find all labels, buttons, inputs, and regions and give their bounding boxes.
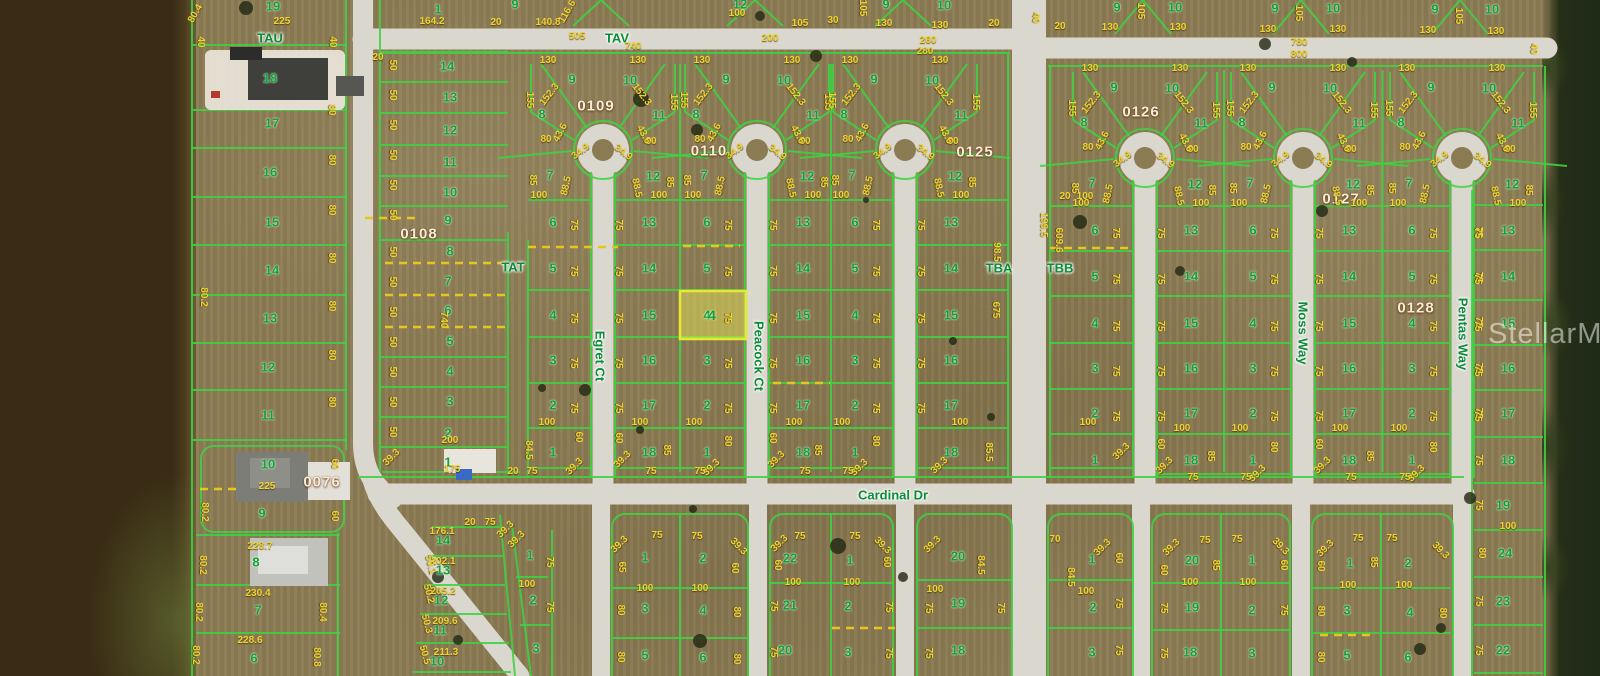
dimension-label: 34.9 — [1112, 150, 1133, 170]
dimension-label: 80 — [615, 604, 625, 615]
dimension-label: 85 — [1368, 556, 1378, 567]
dimension-label: 43.6 — [854, 122, 872, 144]
dimension-label: 75 — [694, 467, 705, 477]
lot-number-label: 3 — [851, 354, 858, 367]
dimension-label: 80.8 — [311, 647, 321, 666]
dimension-label: 40 — [1528, 43, 1538, 54]
lot-number-label: 5 — [549, 262, 556, 275]
dimension-label: 43.6 — [1094, 130, 1112, 152]
lot-number-label: 16 — [263, 166, 277, 179]
lot-number-label: 3 — [1088, 646, 1095, 659]
dimension-label: 100 — [952, 418, 969, 428]
dimension-label: 80.2 — [193, 602, 203, 621]
dimension-label: 75 — [1313, 410, 1323, 421]
dimension-label: 75 — [1113, 644, 1123, 655]
dimension-label: 155 — [1527, 102, 1537, 119]
lot-number-label: 3 — [703, 354, 710, 367]
dimension-label: 85 — [681, 174, 691, 185]
dimension-label: 88.5 — [1488, 185, 1502, 206]
dimension-label: 75 — [1155, 410, 1165, 421]
dimension-label: 34.9 — [1471, 151, 1492, 171]
dimension-label: 39.3 — [1313, 456, 1334, 477]
lot-number-label: 5 — [851, 262, 858, 275]
dimension-label: 75 — [1313, 320, 1323, 331]
lot-number-label: 15 — [1184, 317, 1198, 330]
dimension-label: 39.3 — [1112, 442, 1133, 463]
dimension-label: 100 — [686, 418, 703, 428]
lot-number-label: 16 — [1501, 362, 1515, 375]
dimension-label: 75 — [870, 312, 880, 323]
dimension-label: 164.2 — [419, 17, 444, 27]
dimension-label: 85 — [1206, 184, 1216, 195]
block-number-label: 0076 — [303, 475, 340, 490]
lot-number-label: 18 — [642, 446, 656, 459]
dimension-label: 75 — [1472, 365, 1482, 376]
lot-number-label: 16 — [1342, 362, 1356, 375]
dimension-label: 88.5 — [931, 177, 945, 198]
lot-number-label: 2 — [1089, 601, 1096, 614]
lot-number-label: 6 — [851, 216, 858, 229]
dimension-label: 155 — [524, 92, 534, 109]
dimension-label: 200 — [762, 34, 779, 44]
dimension-label: 50 — [387, 246, 397, 257]
dimension-label: 75 — [1352, 534, 1363, 544]
dimension-label: 39.3 — [728, 537, 749, 558]
lot-number-label: 23 — [1496, 595, 1510, 608]
dimension-label: 75 — [915, 312, 925, 323]
street-name-label: TBB — [1047, 262, 1074, 275]
dimension-label: 80 — [870, 435, 880, 446]
lot-number-label: 11 — [261, 409, 275, 422]
dimension-label: 39.3 — [565, 457, 586, 478]
lot-number-label: 17 — [1342, 407, 1356, 420]
dimension-label: 175 — [444, 465, 461, 475]
dimension-label: 75 — [1158, 647, 1168, 658]
dimension-label: 75 — [568, 357, 578, 368]
dimension-label: 800 — [1291, 50, 1308, 60]
dimension-label: 80 — [694, 135, 705, 145]
dimension-label: 75 — [1473, 499, 1483, 510]
dimension-label: 75 — [1278, 604, 1288, 615]
lot-number-label: 4 — [1408, 317, 1415, 330]
dimension-label: 50 — [387, 149, 397, 160]
dimension-label: 80 — [1315, 651, 1325, 662]
dimension-label: 50 — [387, 89, 397, 100]
dimension-label: 40 — [1030, 12, 1040, 23]
dimension-label: 80.2 — [190, 645, 200, 664]
highlighted-lot-number: 4 — [708, 307, 716, 323]
dimension-label: 152.3 — [1397, 90, 1420, 116]
dimension-label: 84.5 — [523, 440, 533, 459]
dimension-label: 100 — [1073, 199, 1090, 209]
dimension-label: 75 — [1187, 473, 1198, 483]
dimension-label: 75 — [915, 219, 925, 230]
dimension-label: 211.3 — [434, 648, 458, 658]
dimension-label: 60 — [1158, 564, 1168, 575]
dimension-label: 50 — [387, 306, 397, 317]
lot-number-label: 6 — [250, 652, 257, 665]
dimension-label: 105 — [792, 19, 809, 29]
dimension-label: 80 — [326, 104, 336, 115]
dimension-label: 100 — [805, 191, 822, 201]
dimension-label: 80 — [1268, 441, 1278, 452]
lot-number-label: 8 — [1397, 116, 1404, 129]
lot-number-label: 8 — [692, 108, 699, 121]
dimension-label: 130 — [1260, 25, 1277, 35]
lot-number-label: 14 — [642, 262, 656, 275]
lot-number-label: 10 — [261, 458, 275, 471]
dimension-label: 230.4 — [245, 589, 270, 599]
lot-number-label: 9 — [568, 73, 575, 86]
lot-number-label: 12 — [1505, 178, 1519, 191]
lot-number-label: 1 — [641, 551, 648, 564]
dimension-label: 88.5 — [862, 175, 876, 196]
dimension-label: 105 — [857, 0, 867, 16]
dimension-label: 100 — [1182, 578, 1199, 588]
dimension-label: 100 — [1510, 199, 1527, 209]
lot-number-label: 20 — [778, 644, 792, 657]
lot-number-label: 12 — [1346, 178, 1360, 191]
lot-number-label: 2 — [699, 552, 706, 565]
dimension-label: 75 — [691, 532, 702, 542]
lot-number-label: 1 — [1088, 553, 1095, 566]
dimension-label: 75 — [544, 556, 554, 567]
dimension-label: 88.5 — [783, 177, 797, 198]
dimension-label: 20 — [490, 18, 501, 28]
dimension-label: 50.3 — [419, 613, 434, 634]
lot-number-label: 4 — [699, 604, 706, 617]
lot-number-label: 1 — [846, 554, 853, 567]
dimension-label: 75 — [1399, 473, 1410, 483]
dimension-label: 130 — [1489, 64, 1506, 74]
dimension-label: 75 — [1199, 536, 1210, 546]
dimension-label: 50 — [387, 209, 397, 220]
dimension-label: 39.3 — [1270, 537, 1291, 558]
lot-number-label: 1 — [703, 446, 710, 459]
dimension-label: 75 — [1155, 365, 1165, 376]
street-name-label: TBA — [986, 262, 1013, 275]
dimension-label: 20 — [507, 467, 518, 477]
dimension-label: 75 — [915, 357, 925, 368]
dimension-label: 75 — [484, 518, 495, 528]
dimension-label: 152.3 — [1171, 90, 1194, 116]
dimension-label: 60 — [573, 431, 583, 442]
lot-number-label: 16 — [642, 354, 656, 367]
dimension-label: 75 — [1268, 227, 1278, 238]
lot-number-label: 6 — [1091, 224, 1098, 237]
dimension-label: 199.5 — [1038, 212, 1048, 237]
lot-number-label: 5 — [446, 335, 453, 348]
dimension-label: 60 — [881, 556, 891, 567]
dimension-label: 75 — [915, 402, 925, 413]
lot-number-label: 7 — [444, 275, 451, 288]
dimension-label: 80.2 — [197, 555, 207, 574]
dimension-label: 60 — [767, 432, 777, 443]
dimension-label: 100 — [1500, 522, 1517, 532]
lot-number-label: 2 — [549, 399, 556, 412]
dimension-label: 155 — [668, 94, 678, 111]
dimension-label: 75 — [870, 265, 880, 276]
dimension-label: 100 — [1332, 424, 1349, 434]
lot-number-label: 13 — [796, 216, 810, 229]
dimension-label: 228.6 — [237, 636, 262, 646]
lot-number-label: 7 — [1246, 177, 1253, 190]
lot-number-label: 6 — [1404, 651, 1411, 664]
lot-number-label: 19 — [951, 597, 965, 610]
dimension-label: 75 — [722, 357, 732, 368]
lot-number-label: 11 — [806, 109, 820, 122]
dimension-label: 88.5 — [714, 175, 728, 196]
dimension-label: 75 — [768, 646, 778, 657]
dimension-label: 70 — [1049, 535, 1060, 545]
lot-number-label: 18 — [944, 446, 958, 459]
dimension-label: 80 — [731, 606, 741, 617]
dimension-label: 98.5 — [991, 242, 1001, 261]
lot-number-label: 17 — [796, 399, 810, 412]
dimension-label: 34.9 — [1154, 151, 1175, 171]
dimension-label: 100 — [834, 418, 851, 428]
lot-number-label: 9 — [882, 0, 889, 11]
dimension-label: 152.3 — [538, 82, 561, 108]
lot-number-label: 2 — [851, 399, 858, 412]
dimension-label: 75 — [1427, 320, 1437, 331]
dimension-label: 225 — [259, 482, 276, 492]
dimension-label: 100 — [1391, 424, 1408, 434]
dimension-label: 34.9 — [872, 142, 893, 162]
dimension-label: 39.3 — [923, 535, 944, 556]
dimension-label: 75 — [1155, 227, 1165, 238]
dimension-label: 130 — [876, 19, 893, 29]
dimension-label: 80 — [1399, 143, 1410, 153]
lot-number-label: 3 — [532, 642, 539, 655]
lot-number-label: 9 — [511, 0, 518, 11]
lot-number-label: 11 — [1194, 117, 1208, 130]
dimension-label: 740 — [625, 42, 642, 52]
dimension-label: 100 — [844, 578, 861, 588]
dimension-label: 100 — [1193, 199, 1210, 209]
lot-number-label: 19 — [1496, 499, 1510, 512]
lot-number-label: 5 — [1091, 270, 1098, 283]
dimension-label: 100 — [953, 191, 970, 201]
dimension-label: 176.1 — [429, 527, 454, 537]
lot-number-label: 5 — [1343, 649, 1350, 662]
dimension-label: 34.9 — [570, 142, 591, 162]
dimension-label: 34.9 — [612, 143, 633, 163]
lot-number-label: 6 — [1408, 224, 1415, 237]
dimension-label: 80 — [326, 300, 336, 311]
lot-number-label: 12 — [443, 124, 457, 137]
lot-number-label: 2 — [1249, 407, 1256, 420]
dimension-label: 85 — [664, 176, 674, 187]
dimension-label: 80.4 — [317, 602, 327, 621]
lot-number-label: 6 — [699, 651, 706, 664]
dimension-label: 75 — [767, 265, 777, 276]
dimension-label: 75 — [767, 219, 777, 230]
dimension-label: 152.3 — [1080, 90, 1103, 116]
lot-number-label: 15 — [944, 309, 958, 322]
lot-number-label: 5 — [703, 262, 710, 275]
dimension-label: 155 — [1210, 102, 1220, 119]
dimension-label: 39.3 — [613, 450, 634, 471]
lot-number-label: 13 — [944, 216, 958, 229]
dimension-label: 75 — [995, 602, 1005, 613]
dimension-label: 50.5 — [417, 644, 432, 665]
dimension-label: 100 — [1240, 578, 1257, 588]
dimension-label: 75 — [1268, 320, 1278, 331]
dimension-label: 43.6 — [1493, 132, 1511, 154]
dimension-label: 130 — [1330, 25, 1347, 35]
dimension-label: 75 — [915, 265, 925, 276]
dimension-label: 88.5 — [629, 177, 643, 198]
dimension-label: 75 — [1473, 595, 1483, 606]
dimension-label: 505 — [569, 32, 586, 42]
dimension-label: 130 — [842, 56, 859, 66]
dimension-label: 43.6 — [1411, 130, 1429, 152]
dimension-label: 60 — [1315, 560, 1325, 571]
dimension-label: 75 — [1268, 273, 1278, 284]
map-labels-layer: 01080076010901100125012601270128TAUTAVTA… — [0, 0, 1600, 676]
dimension-label: 75 — [722, 402, 732, 413]
lot-number-label: 19 — [1185, 601, 1199, 614]
block-number-label: 0126 — [1122, 105, 1159, 120]
lot-number-label: 13 — [1184, 224, 1198, 237]
dimension-label: 50 — [387, 179, 397, 190]
dimension-label: 75 — [613, 219, 623, 230]
dimension-label: 100 — [833, 191, 850, 201]
lot-number-label: 18 — [1184, 454, 1198, 467]
dimension-label: 75 — [767, 402, 777, 413]
lot-number-label: 15 — [642, 309, 656, 322]
dimension-label: 40 — [195, 36, 205, 47]
lot-number-label: 7 — [546, 169, 553, 182]
dimension-label: 80 — [1476, 547, 1486, 558]
dimension-label: 80 — [540, 135, 551, 145]
lot-number-label: 17 — [1184, 407, 1198, 420]
dimension-label: 85 — [1386, 182, 1396, 193]
dimension-label: 34.9 — [1312, 151, 1333, 171]
lot-number-label: 2 — [1091, 407, 1098, 420]
dimension-label: 75 — [1473, 644, 1483, 655]
dimension-label: 50 — [387, 59, 397, 70]
dimension-label: 75 — [1313, 273, 1323, 284]
lot-number-label: 5 — [1249, 270, 1256, 283]
street-name-label: Pentas Way — [1457, 298, 1470, 371]
dimension-label: 228.7 — [247, 542, 272, 552]
street-name-label: TAT — [501, 261, 524, 274]
lot-number-label: 16 — [796, 354, 810, 367]
lot-number-label: 2 — [1408, 407, 1415, 420]
lot-number-label: 12 — [1188, 178, 1202, 191]
dimension-label: 100 — [651, 191, 668, 201]
lot-number-label: 8 — [1080, 116, 1087, 129]
dimension-label: 20 — [464, 518, 475, 528]
lot-number-label: 10 — [1326, 2, 1340, 15]
dimension-label: 75 — [613, 402, 623, 413]
dimension-label: 75 — [1345, 473, 1356, 483]
dimension-label: 50 — [387, 119, 397, 130]
dimension-label: 75 — [842, 467, 853, 477]
dimension-label: 75 — [645, 467, 656, 477]
lot-number-label: 12 — [261, 361, 275, 374]
dimension-label: 75 — [883, 601, 893, 612]
dimension-label: 75 — [1473, 454, 1483, 465]
lot-number-label: 3 — [446, 395, 453, 408]
dimension-label: 152.3 — [1329, 90, 1352, 116]
dimension-label: 130 — [1330, 64, 1347, 74]
dimension-label: 75 — [651, 531, 662, 541]
dimension-label: 85 — [1227, 182, 1237, 193]
dimension-label: 152.3 — [692, 82, 715, 108]
lot-number-label: 16 — [1184, 362, 1198, 375]
dimension-label: 100 — [927, 585, 944, 595]
dimension-label: 60 — [613, 432, 623, 443]
dimension-label: 39.3 — [872, 536, 893, 557]
lot-number-label: 3 — [1091, 362, 1098, 375]
lot-number-label: 14 — [796, 262, 810, 275]
dimension-label: 39.3 — [1155, 456, 1176, 477]
dimension-label: 34.9 — [766, 143, 787, 163]
street-name-label: Moss Way — [1297, 301, 1310, 364]
dimension-label: 130 — [1082, 64, 1099, 74]
dimension-label: 88.5 — [1171, 185, 1185, 206]
dimension-label: 130 — [932, 56, 949, 66]
dimension-label: 85 — [829, 174, 839, 185]
dimension-label: 60 — [329, 510, 339, 521]
dimension-label: 75 — [1113, 597, 1123, 608]
lot-number-label: 14 — [1501, 270, 1515, 283]
dimension-label: 80 — [326, 204, 336, 215]
lot-number-label: 14 — [1342, 270, 1356, 283]
lot-number-label: 13 — [263, 312, 277, 325]
dimension-label: 75 — [526, 467, 537, 477]
lot-number-label: 17 — [944, 399, 958, 412]
lot-number-label: 18 — [263, 72, 277, 85]
lot-number-label: 4 — [851, 309, 858, 322]
lot-number-label: 14 — [944, 262, 958, 275]
dimension-label: 155 — [1066, 100, 1076, 117]
dimension-label: 39.3 — [1430, 541, 1451, 562]
dimension-label: 75 — [768, 600, 778, 611]
dimension-label: 85 — [1364, 184, 1374, 195]
lot-number-label: 8 — [1238, 116, 1245, 129]
dimension-label: 75 — [568, 402, 578, 413]
lot-number-label: 1 — [1408, 454, 1415, 467]
dimension-label: 85 — [818, 176, 828, 187]
dimension-label: 60 — [729, 562, 739, 573]
lot-number-label: 11 — [652, 109, 666, 122]
dimension-label: 100 — [1396, 581, 1413, 591]
dimension-label: 152.3 — [1238, 90, 1261, 116]
dimension-label: 84.5 — [1065, 567, 1075, 586]
dimension-label: 39.3 — [1316, 539, 1337, 560]
lot-number-label: 1 — [526, 549, 533, 562]
dimension-label: 43.6 — [1176, 132, 1194, 154]
dimension-label: 75 — [1110, 320, 1120, 331]
lot-number-label: 9 — [444, 214, 451, 227]
dimension-label: 75 — [1427, 273, 1437, 284]
dimension-label: 100 — [637, 584, 654, 594]
lot-number-label: 15 — [796, 309, 810, 322]
street-name-label: Cardinal Dr — [858, 489, 928, 502]
dimension-label: 155 — [678, 92, 688, 109]
dimension-label: 75 — [794, 532, 805, 542]
lot-number-label: 9 — [258, 507, 265, 520]
dimension-label: 260 — [920, 36, 937, 46]
dimension-label: 34.9 — [1429, 150, 1450, 170]
dimension-label: 85 — [1205, 450, 1215, 461]
dimension-label: 80 — [1437, 607, 1447, 618]
dimension-label: 60 — [329, 458, 339, 469]
